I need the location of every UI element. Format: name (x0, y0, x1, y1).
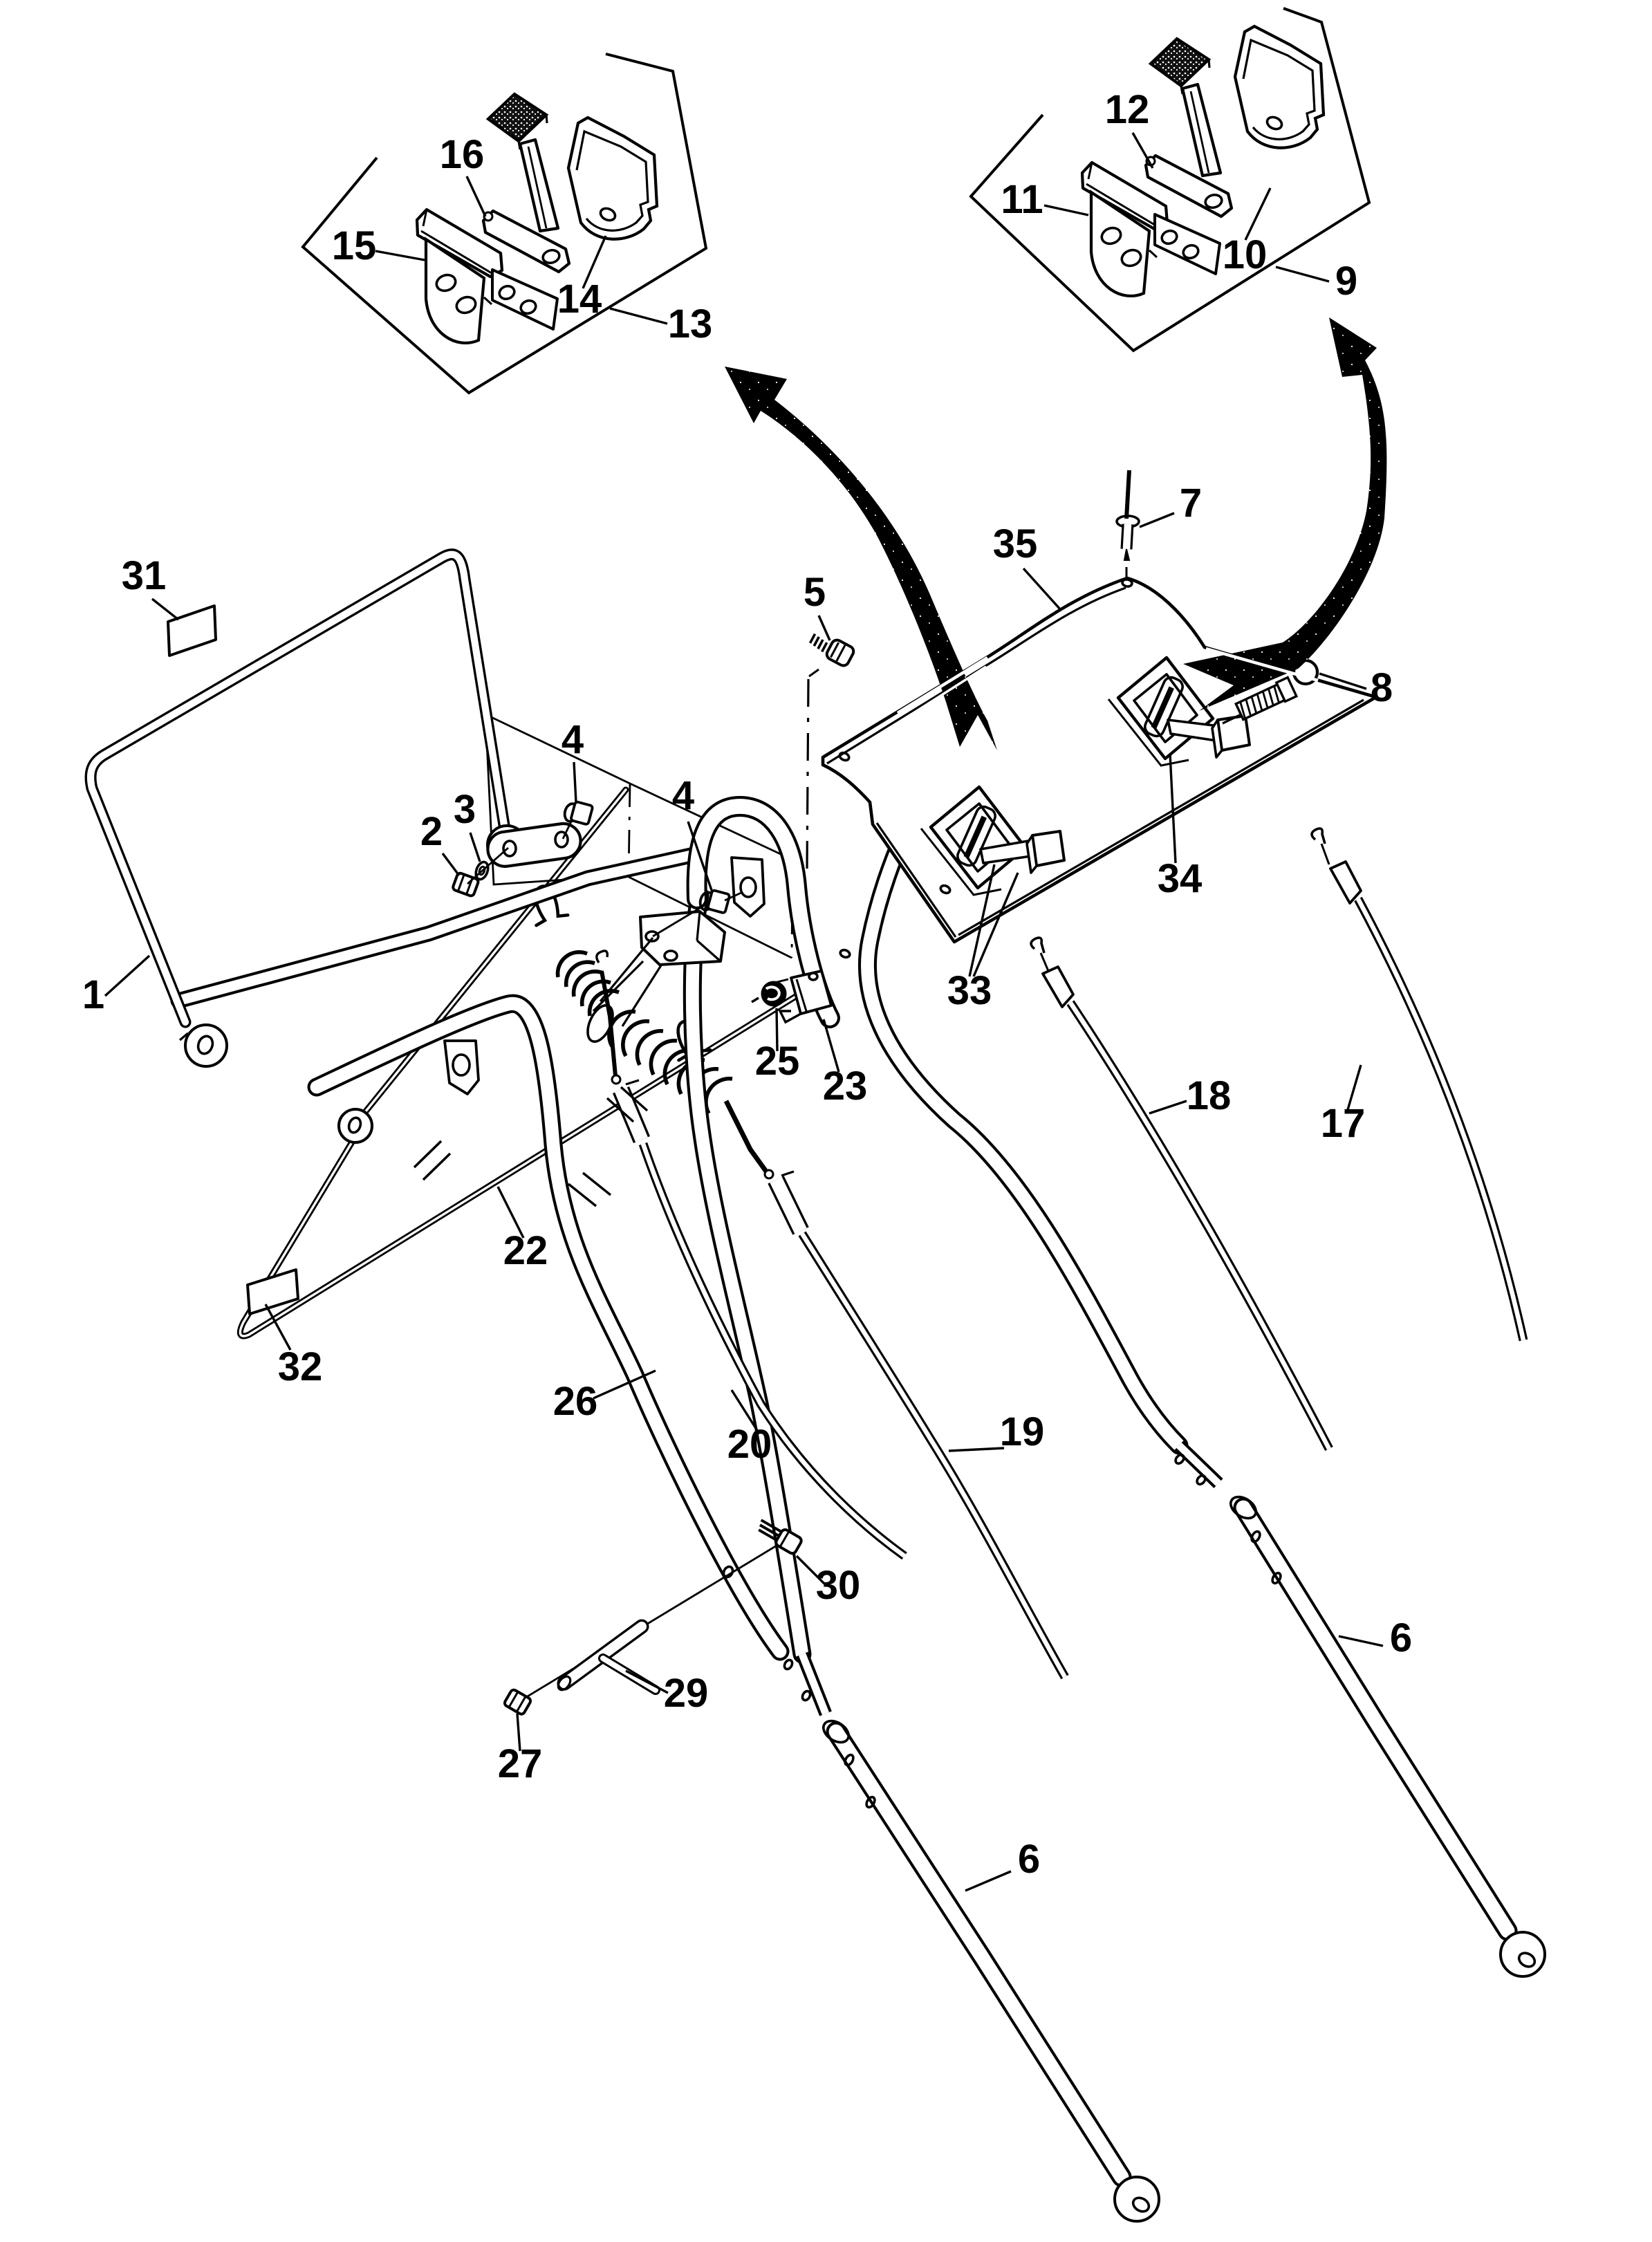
svg-text:14: 14 (557, 277, 602, 322)
svg-text:16: 16 (440, 132, 485, 177)
svg-text:3: 3 (454, 787, 476, 832)
svg-text:4: 4 (672, 773, 694, 818)
svg-text:20: 20 (727, 1422, 772, 1467)
svg-text:32: 32 (278, 1344, 323, 1389)
svg-text:2: 2 (420, 809, 443, 854)
svg-text:1: 1 (82, 972, 104, 1017)
svg-text:29: 29 (664, 1671, 709, 1716)
svg-text:23: 23 (823, 1064, 868, 1109)
svg-text:15: 15 (332, 223, 377, 268)
svg-text:31: 31 (122, 553, 167, 598)
svg-text:17: 17 (1321, 1101, 1366, 1146)
svg-text:4: 4 (562, 717, 584, 762)
svg-text:11: 11 (1001, 177, 1043, 222)
svg-text:6: 6 (1018, 1837, 1040, 1882)
svg-text:12: 12 (1105, 87, 1150, 132)
svg-text:5: 5 (804, 570, 826, 615)
svg-text:18: 18 (1187, 1073, 1232, 1118)
svg-text:26: 26 (553, 1379, 598, 1424)
svg-text:9: 9 (1335, 259, 1357, 304)
svg-text:8: 8 (1371, 665, 1393, 710)
svg-text:19: 19 (1000, 1409, 1045, 1454)
svg-text:34: 34 (1158, 856, 1203, 901)
svg-text:6: 6 (1390, 1615, 1412, 1660)
svg-text:22: 22 (503, 1228, 548, 1273)
svg-text:7: 7 (1180, 481, 1202, 526)
svg-text:13: 13 (668, 302, 713, 346)
svg-text:30: 30 (816, 1563, 861, 1608)
svg-text:35: 35 (993, 521, 1038, 566)
